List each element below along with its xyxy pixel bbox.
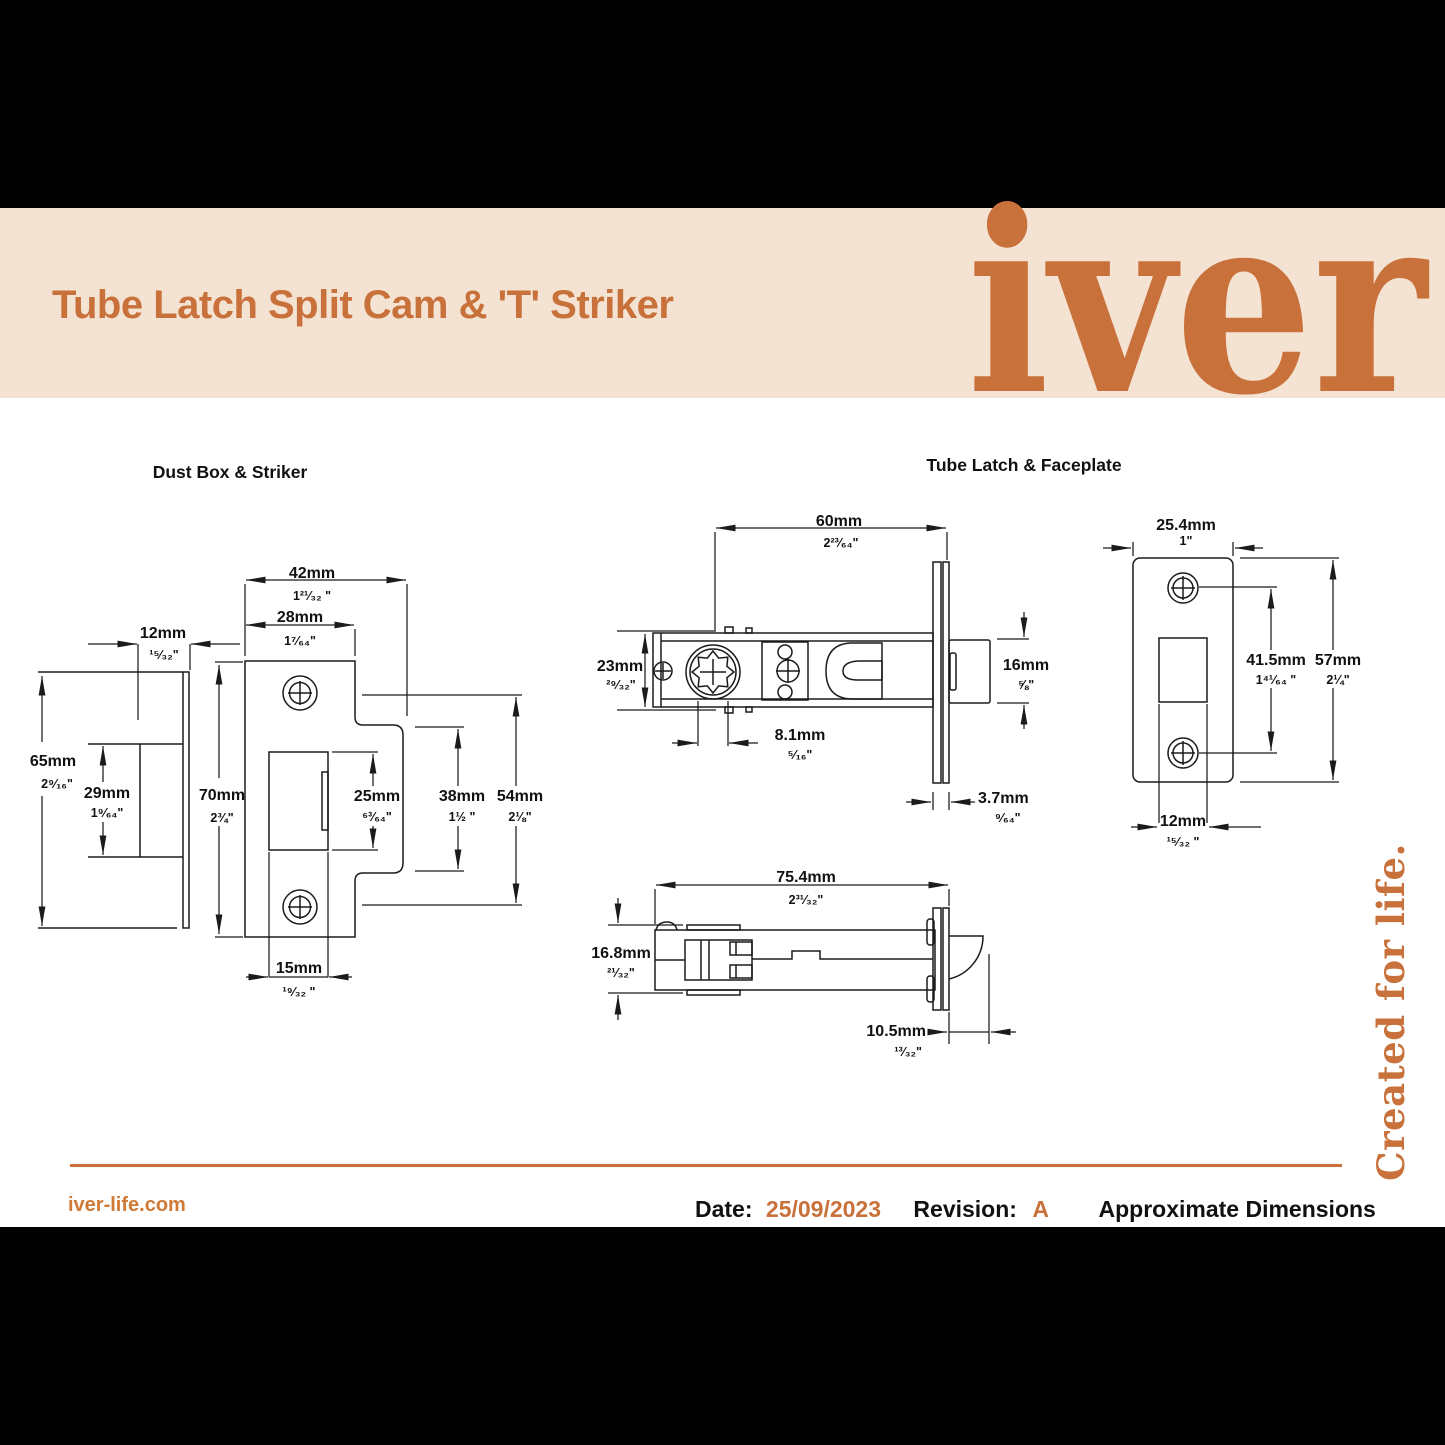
dim-25-4mm-mm: 25.4mm <box>1156 517 1216 534</box>
dim-60mm-mm: 60mm <box>816 513 862 530</box>
latch-fork-slot <box>826 643 882 699</box>
dim-23mm-mm: 23mm <box>597 658 643 675</box>
dim-70mm-mm: 70mm <box>199 787 245 804</box>
dim-54mm-mm: 54mm <box>497 788 543 805</box>
footer-divider <box>70 1164 1342 1167</box>
dim-28mm-in: 1⁷⁄₆₄" <box>284 634 316 648</box>
dim-41-5mm-in: 1⁴¹⁄₆₄ " <box>1256 673 1296 687</box>
spindle-hole <box>686 645 740 699</box>
tube-latch-plan-dimensions <box>617 528 1029 810</box>
dim-29mm-mm: 29mm <box>84 785 130 802</box>
tube-latch-faceplate-title: Tube Latch & Faceplate <box>926 455 1121 475</box>
technical-drawings: Dust Box & Striker Tube Latch & Faceplat… <box>0 398 1445 1168</box>
dim-65mm-in: 2⁹⁄₁₆" <box>41 777 73 791</box>
bottom-letterbox-bar <box>0 1227 1445 1445</box>
dim-57mm-mm: 57mm <box>1315 652 1361 669</box>
dim-57mm-in: 2¼" <box>1326 673 1349 687</box>
dim-41-5mm-mm: 41.5mm <box>1246 652 1306 669</box>
dim-15mm-in: ¹⁹⁄₃₂ " <box>283 985 316 999</box>
dim-25-4mm-in: 1" <box>1180 534 1193 548</box>
dim-25mm-in: ⁶³⁄₆₄" <box>362 810 392 824</box>
dimensions-note: Approximate Dimensions <box>1099 1196 1376 1222</box>
dim-10-5mm-mm: 10.5mm <box>866 1023 926 1040</box>
dim-15mm-mm: 15mm <box>276 960 322 977</box>
faceplate-dimensions <box>1103 542 1339 827</box>
tube-latch-side-view <box>655 908 983 1010</box>
revision-label: Revision: <box>913 1196 1017 1222</box>
dim-29mm-in: 1⁹⁄₆₄" <box>91 806 124 820</box>
dust-box-striker-title: Dust Box & Striker <box>153 462 308 482</box>
dim-23mm-in: ²⁹⁄₃₂" <box>606 678 636 692</box>
iver-logo: iver <box>962 211 1432 398</box>
dim-70mm-in: 2¾" <box>210 811 233 825</box>
spec-sheet-page: Tube Latch Split Cam & 'T' Striker iver … <box>0 0 1445 1445</box>
latch-bolt-plan <box>949 640 990 703</box>
revision-value: A <box>1032 1196 1048 1222</box>
dim-42mm-in: 1²¹⁄₃₂ " <box>293 589 331 603</box>
dim-38mm-mm: 38mm <box>439 788 485 805</box>
dim-12mm-in: ¹⁵⁄₃₂" <box>149 648 178 662</box>
date-value: 25/09/2023 <box>766 1196 881 1222</box>
dim-16-8mm-in: ²¹⁄₃₂" <box>607 966 635 980</box>
website-link[interactable]: iver-life.com <box>68 1194 186 1217</box>
dim-8-1mm-in: ⁵⁄₁₆" <box>788 748 813 762</box>
dim-16mm-in: ⅝" <box>1018 678 1034 692</box>
dim-60mm-in: 2²³⁄₆₄" <box>824 536 859 550</box>
dim-12mm-mm: 12mm <box>140 625 186 642</box>
dim-12mm-faceplate-mm: 12mm <box>1160 813 1206 830</box>
dim-75-4mm-mm: 75.4mm <box>776 869 836 886</box>
tagline-text: Created for life. <box>1369 843 1413 1181</box>
dim-16-8mm-mm: 16.8mm <box>591 945 651 962</box>
dim-54mm-in: 2⅛" <box>508 810 531 824</box>
latch-bolt-side <box>949 936 983 979</box>
page-title: Tube Latch Split Cam & 'T' Striker <box>52 285 673 325</box>
date-label: Date: <box>695 1196 753 1222</box>
dim-25mm-mm: 25mm <box>354 788 400 805</box>
faceplate-front-view <box>1133 558 1233 782</box>
tube-latch-plan-view <box>653 562 990 783</box>
dim-12mm-faceplate-in: ¹⁵⁄₃₂ " <box>1167 835 1200 849</box>
dim-75-4mm-in: 2³¹⁄₃₂" <box>789 893 824 907</box>
tube-latch-side-dimensions <box>608 885 1016 1044</box>
dim-3-7mm-in: ⁹⁄₆₄" <box>995 811 1021 825</box>
striker-plate-dimensions <box>215 580 522 977</box>
dim-16mm-mm: 16mm <box>1003 657 1049 674</box>
dim-8-1mm-mm: 8.1mm <box>775 727 826 744</box>
dim-3-7mm-mm: 3.7mm <box>978 790 1029 807</box>
dim-28mm-mm: 28mm <box>277 609 323 626</box>
dim-42mm-mm: 42mm <box>289 565 335 582</box>
dim-10-5mm-in: ¹³⁄₃₂" <box>894 1045 922 1059</box>
dim-38mm-in: 1½ " <box>449 810 476 824</box>
cam-block <box>762 642 808 700</box>
faceplate-plan <box>933 562 941 783</box>
footer-meta: Date: 25/09/2023 Revision: A Approximate… <box>695 1196 1376 1223</box>
dim-65mm-mm: 65mm <box>30 753 76 770</box>
